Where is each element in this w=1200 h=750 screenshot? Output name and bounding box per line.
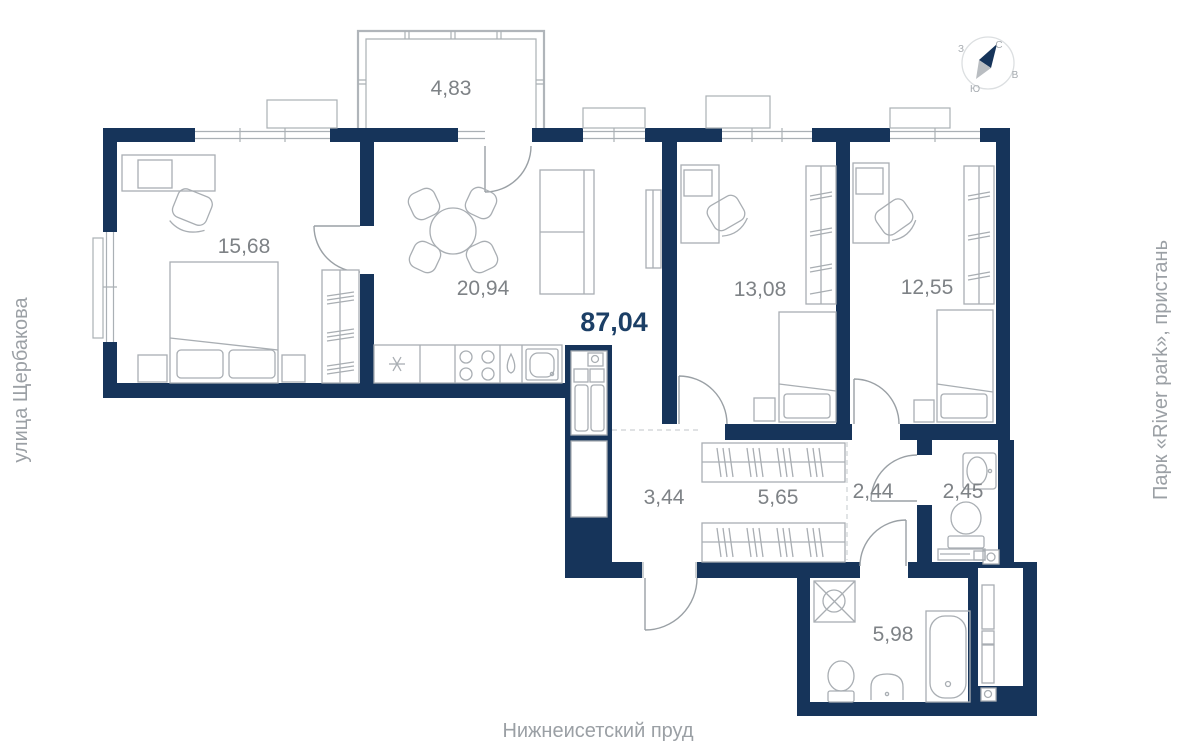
toilet bbox=[951, 502, 981, 534]
chair bbox=[406, 238, 443, 275]
door-entrance bbox=[645, 578, 697, 630]
cabinet bbox=[982, 645, 994, 683]
area-label-wc: 2,45 bbox=[943, 480, 984, 503]
area-label-bathroom: 5,98 bbox=[873, 623, 914, 646]
area-label-bedroom-2: 13,08 bbox=[734, 278, 787, 301]
chair bbox=[166, 186, 216, 237]
door-bathroom bbox=[860, 520, 906, 566]
faucet bbox=[507, 354, 515, 373]
pillow bbox=[784, 394, 830, 418]
chair bbox=[704, 192, 751, 240]
cabinet bbox=[982, 631, 994, 644]
pillow bbox=[177, 350, 223, 378]
area-label-hallway: 5,65 bbox=[758, 486, 799, 509]
pond-label-bottom: Нижнеисетский пруд bbox=[502, 720, 693, 742]
door-bedroom bbox=[314, 226, 360, 272]
stove bbox=[460, 351, 494, 380]
area-label-hall: 2,44 bbox=[853, 480, 894, 503]
window-frame-outer bbox=[706, 96, 770, 128]
fridge-symbol bbox=[389, 357, 405, 371]
area-label-corridor: 3,44 bbox=[644, 486, 685, 509]
furniture-bedroom bbox=[122, 155, 359, 383]
nightstand bbox=[282, 355, 305, 382]
nightstand bbox=[754, 398, 775, 421]
park-label-right: Парк «River park», пристань bbox=[1150, 240, 1172, 500]
street-label-left: улица Щербакова bbox=[10, 296, 32, 462]
compass-west-label: З bbox=[958, 44, 964, 55]
floor-plan-page: 4,83 15,68 20,94 87,04 13,08 12,55 3,44 … bbox=[0, 0, 1200, 750]
nightstand bbox=[138, 355, 167, 382]
total-area-label: 87,04 bbox=[580, 307, 648, 337]
area-label-balcony: 4,83 bbox=[431, 77, 472, 100]
compass-east-label: В bbox=[1012, 70, 1019, 81]
door-balcony bbox=[485, 146, 531, 192]
floor-plan: 4,83 15,68 20,94 87,04 13,08 12,55 3,44 … bbox=[0, 0, 1200, 750]
window-frame-outer bbox=[93, 238, 103, 338]
chair bbox=[405, 185, 442, 222]
monitor bbox=[684, 170, 712, 196]
fixtures-wc bbox=[938, 453, 996, 560]
compass-south-label: Ю bbox=[970, 84, 980, 95]
cabinet bbox=[982, 585, 994, 629]
pillow bbox=[229, 350, 275, 378]
monitor bbox=[138, 160, 172, 188]
window-frame-outer bbox=[267, 100, 337, 128]
area-label-bedroom: 15,68 bbox=[218, 235, 271, 258]
nightstand bbox=[914, 400, 934, 422]
compass-rose: С З В Ю bbox=[958, 37, 1019, 95]
chair bbox=[872, 196, 920, 244]
window-frame-outer bbox=[583, 108, 645, 128]
chair bbox=[462, 184, 499, 221]
compass-north-label: С bbox=[995, 40, 1002, 51]
pillow bbox=[941, 394, 987, 418]
area-label-bedroom-3: 12,55 bbox=[901, 276, 954, 299]
door-bedroom-2 bbox=[679, 376, 727, 424]
door-bedroom-3 bbox=[854, 379, 899, 424]
bathtub bbox=[926, 611, 970, 702]
monitor bbox=[856, 168, 883, 194]
area-label-kitchen-living: 20,94 bbox=[457, 277, 510, 300]
window-frame-outer bbox=[890, 108, 950, 128]
toilet bbox=[828, 661, 854, 691]
chair bbox=[463, 238, 500, 275]
furniture-kitchen bbox=[374, 170, 661, 383]
